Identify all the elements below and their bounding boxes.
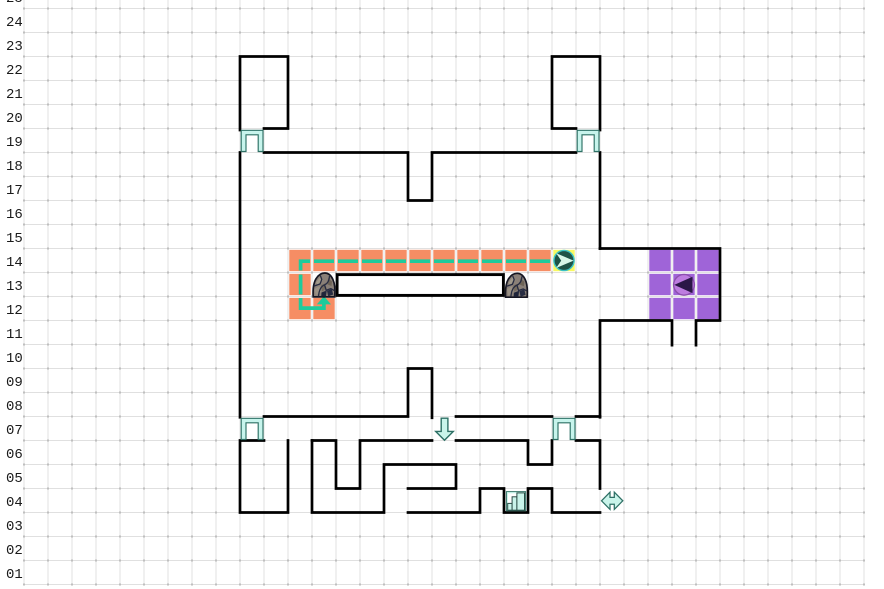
svg-text:18: 18 <box>6 159 23 175</box>
svg-text:11: 11 <box>6 327 23 343</box>
svg-text:23: 23 <box>6 39 23 55</box>
svg-text:12: 12 <box>6 303 23 319</box>
svg-text:22: 22 <box>6 63 23 79</box>
svg-text:10: 10 <box>6 351 23 367</box>
svg-text:01: 01 <box>6 567 23 583</box>
svg-text:05: 05 <box>6 471 23 487</box>
svg-text:02: 02 <box>6 543 23 559</box>
svg-text:08: 08 <box>6 399 23 415</box>
svg-text:15: 15 <box>6 231 23 247</box>
svg-text:20: 20 <box>6 111 23 127</box>
svg-text:13: 13 <box>6 279 23 295</box>
svg-text:19: 19 <box>6 135 23 151</box>
svg-text:03: 03 <box>6 519 23 535</box>
svg-text:17: 17 <box>6 183 23 199</box>
svg-text:16: 16 <box>6 207 23 223</box>
svg-text:14: 14 <box>6 255 23 271</box>
svg-text:21: 21 <box>6 87 23 103</box>
svg-text:04: 04 <box>6 495 23 511</box>
svg-text:06: 06 <box>6 447 23 463</box>
svg-text:07: 07 <box>6 423 23 439</box>
svg-text:09: 09 <box>6 375 23 391</box>
svg-text:25: 25 <box>6 0 23 7</box>
svg-text:24: 24 <box>6 15 23 31</box>
